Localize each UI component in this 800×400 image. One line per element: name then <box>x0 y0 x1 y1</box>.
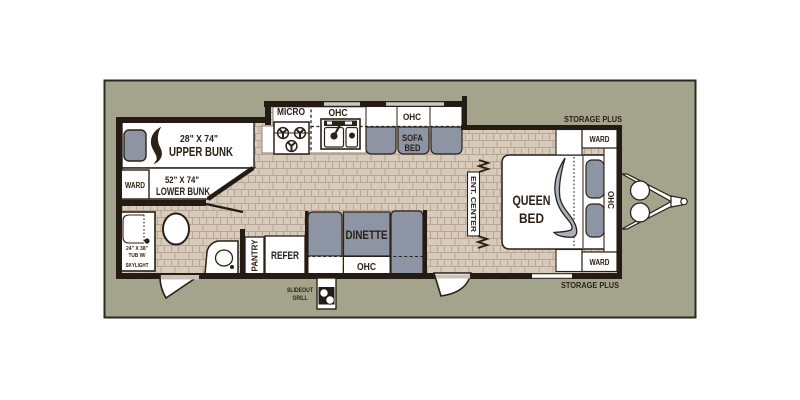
svg-text:OHC: OHC <box>329 108 348 119</box>
svg-text:UPPER BUNK: UPPER BUNK <box>169 145 233 159</box>
svg-text:QUEEN: QUEEN <box>513 192 551 208</box>
svg-text:MICRO: MICRO <box>277 107 305 118</box>
svg-text:WARD: WARD <box>590 258 610 267</box>
svg-text:BED: BED <box>405 143 421 153</box>
svg-text:OHC: OHC <box>403 112 421 122</box>
svg-text:LOWER BUNK: LOWER BUNK <box>156 186 210 198</box>
svg-text:REFER: REFER <box>271 250 299 262</box>
svg-text:SLIDEOUT: SLIDEOUT <box>287 287 313 294</box>
svg-text:24" X 38": 24" X 38" <box>126 246 148 252</box>
svg-text:STORAGE PLUS: STORAGE PLUS <box>561 281 620 290</box>
svg-text:OHC: OHC <box>606 191 615 209</box>
svg-text:SOFA: SOFA <box>402 133 423 143</box>
svg-text:28" X 74": 28" X 74" <box>180 134 218 145</box>
svg-text:GRILL: GRILL <box>293 295 308 302</box>
svg-text:DINETTE: DINETTE <box>346 228 388 242</box>
svg-text:PANTRY: PANTRY <box>251 239 260 272</box>
svg-text:OHC: OHC <box>357 262 376 273</box>
svg-text:WARD: WARD <box>125 181 145 190</box>
svg-text:SKYLIGHT: SKYLIGHT <box>126 263 149 269</box>
svg-text:ENT. CENTER: ENT. CENTER <box>469 176 476 232</box>
svg-text:52" X 74": 52" X 74" <box>165 175 199 186</box>
svg-text:STORAGE PLUS: STORAGE PLUS <box>564 115 623 124</box>
svg-text:WARD: WARD <box>590 135 610 144</box>
svg-text:TUB W/: TUB W/ <box>129 253 146 259</box>
svg-text:BED: BED <box>519 210 544 226</box>
